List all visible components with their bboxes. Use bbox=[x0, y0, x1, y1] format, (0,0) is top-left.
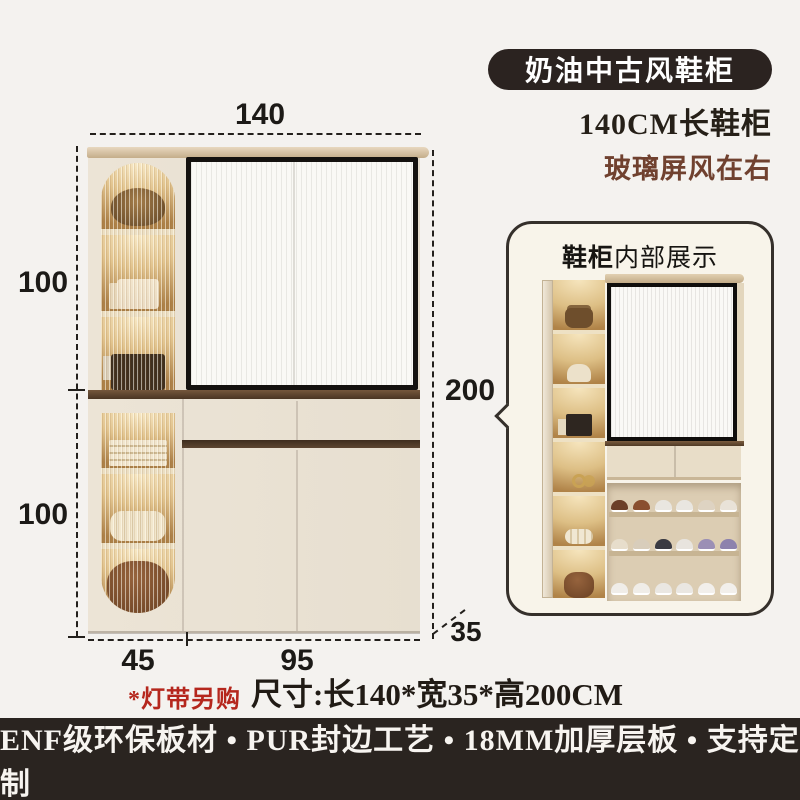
panel-seam bbox=[182, 399, 184, 631]
shoe bbox=[698, 539, 715, 551]
interior-photo bbox=[542, 274, 744, 606]
dimension-label-lower-height: 100 bbox=[16, 498, 70, 532]
dimension-line-top bbox=[90, 133, 421, 135]
niche-cell bbox=[101, 317, 175, 390]
shoe bbox=[676, 539, 693, 551]
feature-banner: ENF级环保板材 • PUR封边工艺 • 18MM加厚层板 • 支持定制 bbox=[0, 718, 800, 800]
title-badge: 奶油中古风鞋柜 bbox=[488, 49, 772, 90]
interior-side-panel bbox=[737, 283, 744, 441]
interior-cell bbox=[553, 388, 605, 438]
shoe bbox=[698, 583, 715, 595]
dimension-line-bottom bbox=[88, 639, 420, 641]
display-niche-upper bbox=[101, 163, 175, 390]
interior-reeded-glass bbox=[611, 287, 733, 437]
niche-cell bbox=[101, 163, 175, 229]
counter-wood-strip bbox=[88, 390, 420, 399]
interior-top-panel bbox=[605, 274, 744, 283]
footnote-light-strip: *灯带另购 bbox=[128, 679, 241, 714]
reeded-glass-panel bbox=[191, 162, 413, 385]
drawer-seam bbox=[296, 401, 298, 440]
niche-cell bbox=[101, 413, 175, 468]
open-door-left bbox=[542, 280, 553, 598]
decor-bag bbox=[107, 561, 169, 613]
decor-hat bbox=[567, 364, 591, 382]
shoe-shelf-row bbox=[609, 561, 739, 595]
decor-bag bbox=[564, 572, 594, 598]
interior-cell bbox=[553, 442, 605, 492]
decor-books bbox=[109, 440, 167, 466]
dimension-label-upper-height: 100 bbox=[16, 266, 70, 300]
interior-drawers bbox=[607, 446, 741, 480]
interior-side-column bbox=[553, 280, 605, 598]
shoe bbox=[633, 583, 650, 595]
decor-basket bbox=[565, 529, 593, 544]
shoe bbox=[655, 583, 672, 595]
decor-rings bbox=[572, 474, 586, 488]
callout-title-rest: 内部展示 bbox=[614, 244, 718, 272]
shoe bbox=[676, 583, 693, 595]
shoe bbox=[720, 539, 737, 551]
dimension-tick-bottom bbox=[186, 632, 188, 646]
interior-cell bbox=[553, 496, 605, 546]
callout-title: 鞋柜内部展示 bbox=[509, 238, 771, 274]
shoe-shelf-row bbox=[609, 483, 739, 517]
interior-glass-screen bbox=[607, 283, 737, 441]
dimension-label-total-height: 200 bbox=[440, 374, 500, 408]
callout-title-strong: 鞋柜 bbox=[562, 244, 614, 272]
niche-cell bbox=[101, 549, 175, 613]
dimension-tick-left-mid bbox=[68, 389, 85, 391]
decor-basket bbox=[111, 188, 165, 226]
shoe bbox=[720, 500, 737, 512]
display-niche-lower bbox=[101, 413, 175, 613]
shoe bbox=[611, 500, 628, 512]
door-seam bbox=[296, 450, 298, 631]
shoe bbox=[633, 539, 650, 551]
shoe bbox=[655, 539, 672, 551]
interior-right-section bbox=[605, 274, 744, 606]
dimension-line-left bbox=[76, 146, 78, 637]
subtitle-screen-position: 玻璃屏风在右 bbox=[604, 147, 772, 186]
footnote-size: 尺寸:长140*宽35*高200CM bbox=[251, 669, 623, 714]
decor-handbag bbox=[565, 308, 593, 328]
interior-callout: 鞋柜内部展示 bbox=[506, 221, 774, 616]
interior-cell bbox=[553, 550, 605, 598]
shoe bbox=[720, 583, 737, 595]
shoe bbox=[611, 583, 628, 595]
decor-baskets bbox=[110, 511, 166, 541]
dimension-line-right bbox=[432, 150, 434, 639]
drawer-handle-groove bbox=[182, 440, 420, 448]
shoe bbox=[655, 500, 672, 512]
niche-cell bbox=[101, 235, 175, 311]
shoe bbox=[611, 539, 628, 551]
dimension-label-width: 140 bbox=[195, 98, 325, 132]
shoe bbox=[676, 500, 693, 512]
decor-glassware bbox=[117, 279, 159, 309]
shoe bbox=[633, 500, 650, 512]
dimension-label-left-width: 45 bbox=[106, 644, 170, 678]
decor-giftbox bbox=[566, 414, 592, 436]
dimension-tick-left-bottom bbox=[68, 636, 85, 638]
interior-cell bbox=[553, 280, 605, 330]
interior-cell bbox=[553, 334, 605, 384]
decor-box bbox=[111, 354, 165, 390]
cabinet-base-shadow bbox=[88, 631, 420, 634]
glass-screen bbox=[186, 157, 418, 390]
shoe-compartment bbox=[607, 483, 741, 601]
shoe bbox=[698, 500, 715, 512]
dimension-label-depth: 35 bbox=[441, 616, 491, 648]
product-page: 奶油中古风鞋柜 140CM长鞋柜 玻璃屏风在右 bbox=[0, 0, 800, 800]
subtitle-length: 140CM长鞋柜 bbox=[579, 99, 772, 143]
shoe-shelf-row bbox=[609, 522, 739, 556]
niche-cell bbox=[101, 474, 175, 543]
